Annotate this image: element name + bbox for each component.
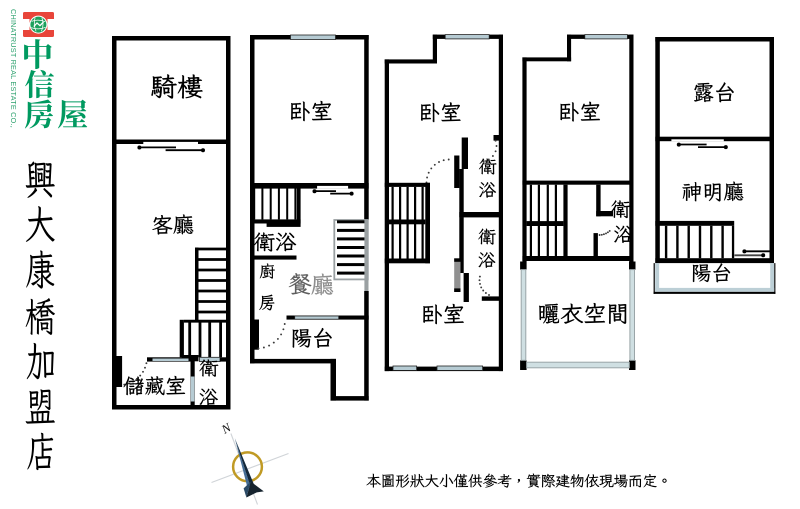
svg-text:CHINATRUST REAL ESTATE CO.,: CHINATRUST REAL ESTATE CO., [9, 9, 18, 128]
